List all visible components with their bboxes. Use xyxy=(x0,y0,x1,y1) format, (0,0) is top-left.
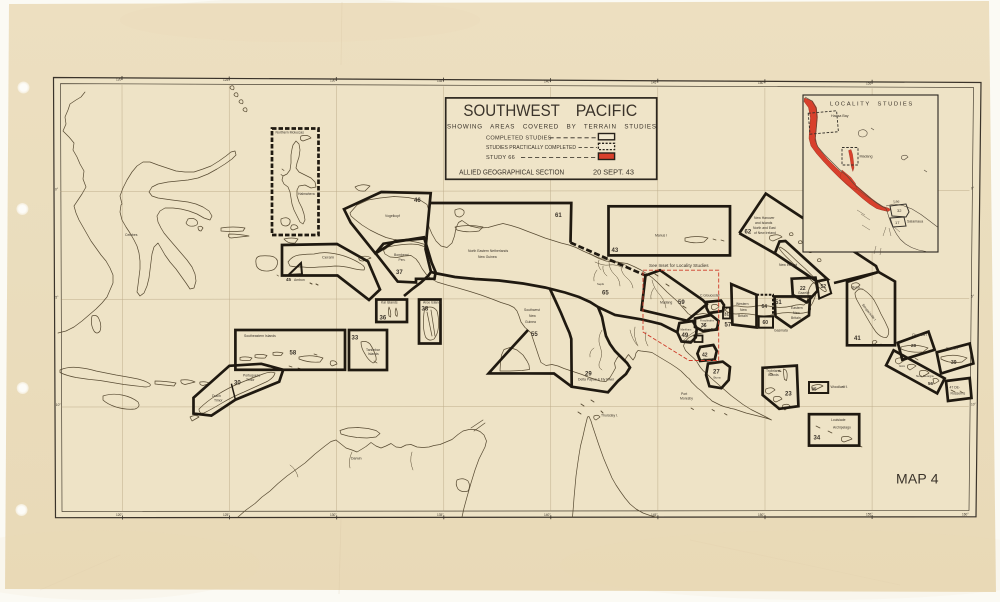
svg-text:STUDIES: STUDIES xyxy=(878,102,914,108)
svg-text:155°: 155° xyxy=(866,81,873,85)
svg-text:Archipelago: Archipelago xyxy=(833,426,851,430)
svg-text:41: 41 xyxy=(854,336,861,342)
svg-text:56: 56 xyxy=(928,381,934,386)
svg-text:58: 58 xyxy=(290,351,297,357)
svg-text:STUDY 66: STUDY 66 xyxy=(486,155,515,161)
svg-text:Pen.: Pen. xyxy=(399,258,406,262)
svg-text:Pena.: Pena. xyxy=(800,295,809,299)
svg-text:Southwest: Southwest xyxy=(524,308,540,312)
svg-text:125°: 125° xyxy=(223,78,230,82)
svg-text:10°: 10° xyxy=(971,403,977,407)
svg-text:Moresby: Moresby xyxy=(680,397,693,401)
svg-text:Gasmata: Gasmata xyxy=(774,329,788,333)
svg-text:See Inset for Locality Stu: See Inset for Locality Studies xyxy=(649,263,709,268)
svg-text:Britain: Britain xyxy=(738,314,748,318)
svg-text:Britain: Britain xyxy=(791,316,801,320)
svg-text:38: 38 xyxy=(422,307,429,313)
svg-text:64: 64 xyxy=(762,304,768,310)
svg-text:C.Gloucester: C.Gloucester xyxy=(700,294,721,298)
svg-text:145°: 145° xyxy=(651,80,658,84)
svg-text:57: 57 xyxy=(725,323,732,329)
svg-text:Thursday I.: Thursday I. xyxy=(601,414,618,418)
svg-text:55: 55 xyxy=(531,332,538,338)
svg-text:New: New xyxy=(793,311,800,315)
svg-text:Halmahera: Halmahera xyxy=(298,192,315,196)
svg-text:Huon Pena: Huon Pena xyxy=(704,327,718,331)
svg-text:Portuguese: Portuguese xyxy=(243,374,260,378)
svg-text:36: 36 xyxy=(380,316,387,322)
svg-text:Ysabel I: Ysabel I xyxy=(946,347,958,351)
svg-text:150°: 150° xyxy=(758,513,765,517)
svg-text:Port: Port xyxy=(681,392,687,396)
svg-text:Kai Islands: Kai Islands xyxy=(381,301,398,305)
svg-text:STUDIES PRACTICALLY COMPLETE: STUDIES PRACTICALLY COMPLETED xyxy=(486,145,576,151)
svg-text:43: 43 xyxy=(612,248,619,254)
svg-text:Timor: Timor xyxy=(246,378,255,382)
svg-text:Salamaua: Salamaua xyxy=(907,220,923,224)
svg-text:Eastern: Eastern xyxy=(791,306,803,310)
svg-text:20 SEPT. 43: 20 SEPT. 43 xyxy=(593,169,634,177)
svg-text:65: 65 xyxy=(602,291,609,297)
svg-text:62: 62 xyxy=(745,230,752,236)
svg-text:Louisiade: Louisiade xyxy=(831,418,846,422)
svg-text:Western: Western xyxy=(736,302,749,306)
svg-text:23: 23 xyxy=(785,392,792,398)
svg-text:New Georgia: New Georgia xyxy=(916,374,934,378)
svg-text:Delta Papua & Fly River: Delta Papua & Fly River xyxy=(578,378,615,382)
svg-text:Ambon: Ambon xyxy=(294,278,305,282)
svg-text:Celebes: Celebes xyxy=(125,233,138,237)
svg-text:Madang: Madang xyxy=(860,155,873,159)
svg-text:160°: 160° xyxy=(962,513,969,517)
svg-text:North Eastern Netherlands: North Eastern Netherlands xyxy=(468,249,508,253)
svg-text:New Guinea: New Guinea xyxy=(478,255,497,259)
svg-text:SHOWING AREAS COVERED BY: SHOWING AREAS COVERED BY TERRAIN STUDIES xyxy=(447,123,656,130)
svg-text:New: New xyxy=(529,314,536,318)
svg-text:Choiseul I: Choiseul I xyxy=(912,333,927,337)
svg-text:Northern Moluccas: Northern Moluccas xyxy=(276,131,305,135)
svg-text:120°: 120° xyxy=(116,513,123,517)
svg-text:17: 17 xyxy=(895,220,900,225)
svg-text:130°: 130° xyxy=(330,79,337,83)
svg-text:47 DE-: 47 DE- xyxy=(950,386,961,390)
svg-text:of New Ireland: of New Ireland xyxy=(754,231,776,235)
svg-text:Russell Is: Russell Is xyxy=(951,392,966,396)
svg-text:32: 32 xyxy=(897,208,902,213)
svg-text:Bomberai: Bomberai xyxy=(394,253,409,257)
svg-text:135°: 135° xyxy=(437,79,444,83)
svg-text:Southeastern Islands: Southeastern Islands xyxy=(244,334,276,338)
svg-text:Timor: Timor xyxy=(214,399,223,403)
svg-text:61: 61 xyxy=(555,213,562,219)
svg-text:MAP 4: MAP 4 xyxy=(896,471,939,487)
svg-text:Lae: Lae xyxy=(894,200,900,204)
svg-text:Sepik: Sepik xyxy=(597,282,605,286)
svg-text:125°: 125° xyxy=(223,513,230,517)
svg-text:28: 28 xyxy=(911,343,917,348)
svg-text:59: 59 xyxy=(678,300,685,306)
svg-text:Darwin: Darwin xyxy=(351,457,362,461)
svg-text:Finschhafen: Finschhafen xyxy=(700,319,715,323)
svg-text:Dutch: Dutch xyxy=(212,394,221,398)
svg-text:51: 51 xyxy=(775,300,782,306)
svg-text:34: 34 xyxy=(814,436,821,442)
svg-text:140°: 140° xyxy=(544,513,551,517)
svg-text:PACIFIC: PACIFIC xyxy=(576,102,638,120)
svg-text:35: 35 xyxy=(812,387,818,392)
svg-text:60: 60 xyxy=(763,320,769,326)
svg-text:46: 46 xyxy=(414,198,421,204)
svg-text:SOUTHWEST: SOUTHWEST xyxy=(463,102,560,120)
svg-text:Vogelkopf: Vogelkopf xyxy=(385,214,400,218)
svg-text:COMPLETED STUDIES: COMPLETED STUDIES xyxy=(486,135,552,141)
svg-text:Islands: Islands xyxy=(368,352,379,356)
svg-text:Islands: Islands xyxy=(768,373,779,377)
svg-text:Aroe Islands: Aroe Islands xyxy=(423,301,442,305)
svg-text:49: 49 xyxy=(682,333,689,339)
svg-text:LOCALITY: LOCALITY xyxy=(830,102,871,108)
svg-text:135°: 135° xyxy=(437,513,444,517)
svg-text:Woodlark I.: Woodlark I. xyxy=(831,385,848,389)
svg-text:Buka....: Buka.... xyxy=(852,286,864,290)
svg-text:130°: 130° xyxy=(330,513,337,517)
svg-text:33: 33 xyxy=(352,336,359,342)
svg-text:39: 39 xyxy=(951,360,957,366)
svg-text:45: 45 xyxy=(286,277,292,282)
svg-text:New Hanover: New Hanover xyxy=(754,216,775,220)
svg-text:120°: 120° xyxy=(116,78,123,82)
svg-text:North and East: North and East xyxy=(753,226,776,230)
svg-text:31: 31 xyxy=(724,312,730,317)
svg-text:Ceram: Ceram xyxy=(322,255,335,260)
svg-text:30: 30 xyxy=(234,381,241,387)
svg-text:Markham: Markham xyxy=(681,328,692,332)
svg-text:Salamaua: Salamaua xyxy=(681,339,693,343)
svg-text:New: New xyxy=(740,308,747,312)
svg-text:37: 37 xyxy=(396,270,403,276)
svg-text:Madang: Madang xyxy=(660,301,672,305)
svg-text:140°: 140° xyxy=(544,80,551,84)
svg-text:Gizo: Gizo xyxy=(899,364,906,368)
svg-text:ALLIED GEOGRAPHICAL SECTION: ALLIED GEOGRAPHICAL SECTION xyxy=(459,169,564,177)
svg-text:150°: 150° xyxy=(758,81,765,85)
svg-text:New Ireland: New Ireland xyxy=(779,263,797,267)
svg-text:155°: 155° xyxy=(866,513,873,517)
svg-text:and Islands: and Islands xyxy=(755,221,773,225)
svg-text:Manus I: Manus I xyxy=(655,234,667,238)
svg-text:Hansa Bay: Hansa Bay xyxy=(831,114,849,118)
svg-text:Guinea: Guinea xyxy=(525,320,536,324)
svg-text:Buna: Buna xyxy=(714,376,721,380)
svg-text:52: 52 xyxy=(821,284,827,290)
svg-text:10°: 10° xyxy=(56,403,62,407)
